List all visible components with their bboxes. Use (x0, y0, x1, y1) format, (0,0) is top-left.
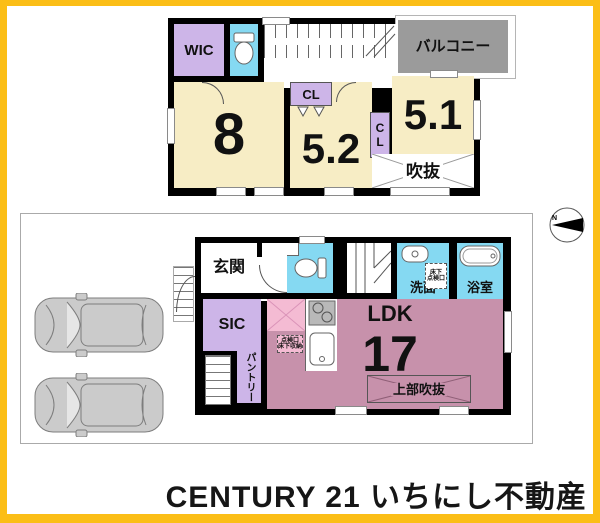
toilet-icon (292, 256, 328, 280)
cl-label: CL (302, 88, 319, 101)
entrance-steps (205, 355, 231, 405)
washbasin-icon (401, 245, 429, 263)
footer-brand: CENTURY 21 いちにし不動産 (166, 472, 587, 516)
svg-text:N: N (552, 215, 557, 222)
upper-void-label: 上部吹抜 (391, 383, 447, 396)
floor1-plan: 玄関 洗面 (195, 237, 511, 415)
stairs-lines-icon (347, 243, 391, 293)
balcony-label: バルコニー (416, 39, 491, 54)
kitchen-fixtures-icon (306, 299, 338, 371)
room-8: 8 (174, 82, 284, 188)
void-label: 吹抜 (403, 163, 443, 180)
car-top-view (33, 293, 165, 357)
wall-stub (257, 243, 262, 257)
pantry-label: パントリー (244, 352, 254, 402)
closet-cl-vertical: CL (370, 112, 390, 158)
room-balcony: バルコニー (398, 20, 508, 73)
stairs-arrow-icon (364, 24, 396, 58)
compass-north-icon: N (546, 204, 588, 246)
sic-label: SIC (219, 317, 246, 333)
room52-size-label: 5.2 (302, 128, 360, 170)
upper-void: 上部吹抜 (367, 375, 471, 403)
wall-stub (449, 243, 457, 273)
window (335, 406, 367, 415)
toilet-icon (232, 32, 256, 68)
car-top-view (33, 373, 165, 437)
stairs-2f (264, 24, 396, 58)
void-2f: 吹抜 (372, 154, 474, 188)
window (473, 100, 481, 140)
cl-vertical-label: CL (374, 121, 386, 149)
window (254, 187, 284, 196)
kitchen-counter (305, 299, 337, 371)
bathtub-icon (459, 245, 501, 267)
window (504, 311, 512, 353)
hatch-text: 床下収納 (278, 344, 302, 350)
window (430, 70, 458, 78)
ldk-label-group: LDK 17 (355, 301, 425, 383)
room8-size-label: 8 (213, 106, 245, 164)
stairs-1f (347, 243, 391, 293)
room-wic: WIC (174, 24, 224, 76)
floor2-plan: バルコニー WIC 8 5.2 (168, 18, 480, 196)
wic-label: WIC (184, 43, 213, 58)
fridge-space (267, 299, 305, 331)
room-pantry: パントリー (237, 351, 261, 403)
kitchen-underfloor-hatch: 点検口 床下収納 (277, 335, 303, 353)
space-cross-icon (267, 299, 305, 331)
window (390, 187, 450, 196)
room-sic: SIC (203, 299, 261, 351)
room-5-1: 5.1 (392, 76, 474, 154)
window (216, 187, 246, 196)
underfloor-inspection-hatch: 床下 点検口 (425, 263, 447, 289)
room-entrance: 玄関 (201, 243, 257, 293)
room51-size-label: 5.1 (404, 94, 462, 136)
hatch-text: 点検口 (427, 276, 445, 282)
closet-cl-2f: CL (290, 82, 332, 106)
entrance-label: 玄関 (213, 260, 245, 276)
window (439, 406, 469, 415)
corner-sink (287, 243, 299, 256)
window (262, 17, 290, 25)
window (324, 187, 354, 196)
window (167, 108, 175, 144)
floorplan-flyer: バルコニー WIC 8 5.2 (0, 0, 600, 523)
window (299, 236, 325, 244)
bathroom-label: 浴室 (467, 281, 493, 294)
ldk-label: LDK (355, 301, 425, 327)
room-toilet-2f (230, 24, 258, 76)
hanger-marks-icon (292, 106, 332, 118)
